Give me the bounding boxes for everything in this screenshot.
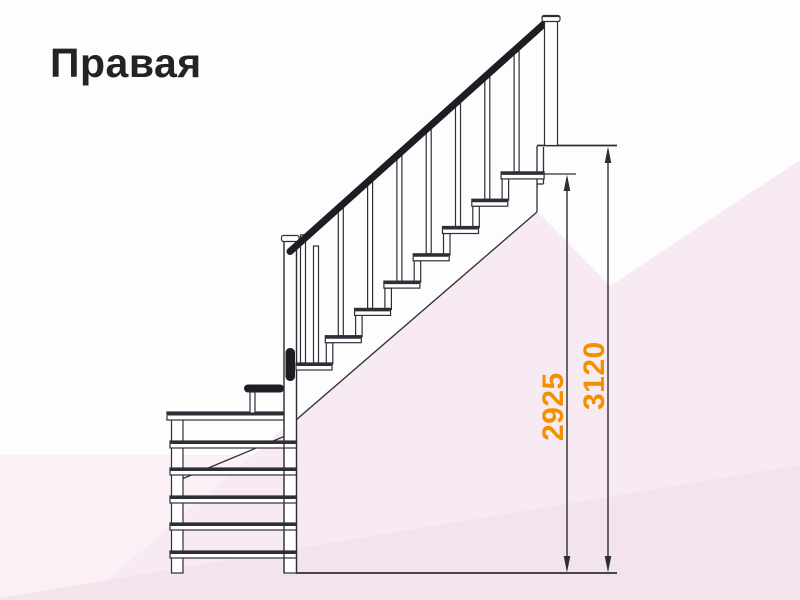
tread <box>443 227 479 234</box>
winder-tread <box>170 468 297 475</box>
tread <box>384 281 420 288</box>
dimension-value-outer: 3120 <box>578 341 611 410</box>
tread <box>325 336 361 343</box>
tread <box>355 308 391 315</box>
winder-baluster <box>250 392 255 413</box>
arrow-up-icon <box>564 175 571 192</box>
winder-top-tread <box>167 412 284 420</box>
staircase-diagram: 2925 3120 <box>0 0 800 600</box>
winder-tread <box>170 551 297 558</box>
tread <box>296 363 332 370</box>
winder-tread <box>170 441 297 448</box>
page-title: Правая <box>50 40 202 87</box>
top-post <box>545 21 558 146</box>
diagram-stage: 2925 3120 Правая <box>0 0 800 600</box>
tread-top <box>501 172 544 179</box>
handrail <box>290 23 545 252</box>
tread <box>413 254 449 261</box>
arrow-up-icon <box>605 147 612 164</box>
tread <box>472 199 508 206</box>
winder-handrail-post-piece <box>286 348 296 381</box>
winder-tread <box>170 523 297 530</box>
winder-tread <box>170 496 297 503</box>
dimension-value-inner: 2925 <box>537 372 570 441</box>
newel-post-cap <box>282 236 300 242</box>
upper-landing <box>537 16 617 146</box>
winder-handrail <box>244 385 284 393</box>
